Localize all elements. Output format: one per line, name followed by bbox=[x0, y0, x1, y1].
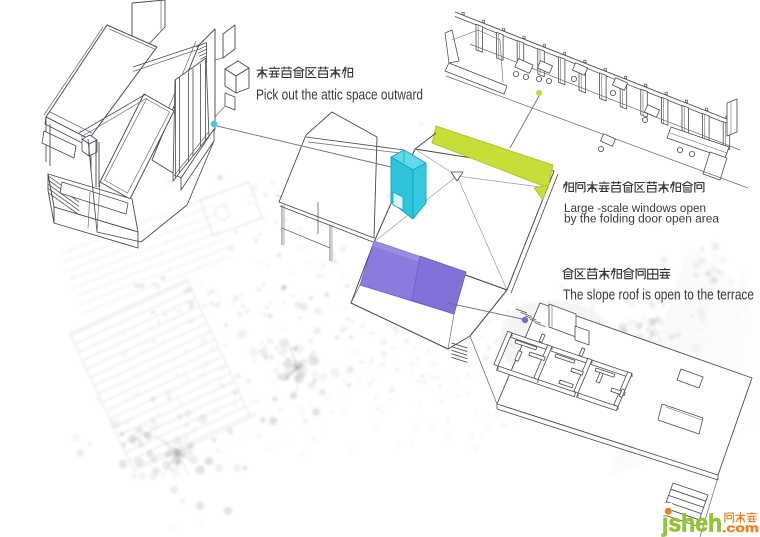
svg-text:.com: .com bbox=[722, 521, 759, 535]
svg-text:Pick out the attic space outwa: Pick out the attic space outward bbox=[256, 87, 423, 104]
svg-text:The slope roof is open to the: The slope roof is open to the terrace bbox=[563, 288, 754, 304]
svg-text:by the folding door open area: by the folding door open area bbox=[564, 212, 719, 226]
